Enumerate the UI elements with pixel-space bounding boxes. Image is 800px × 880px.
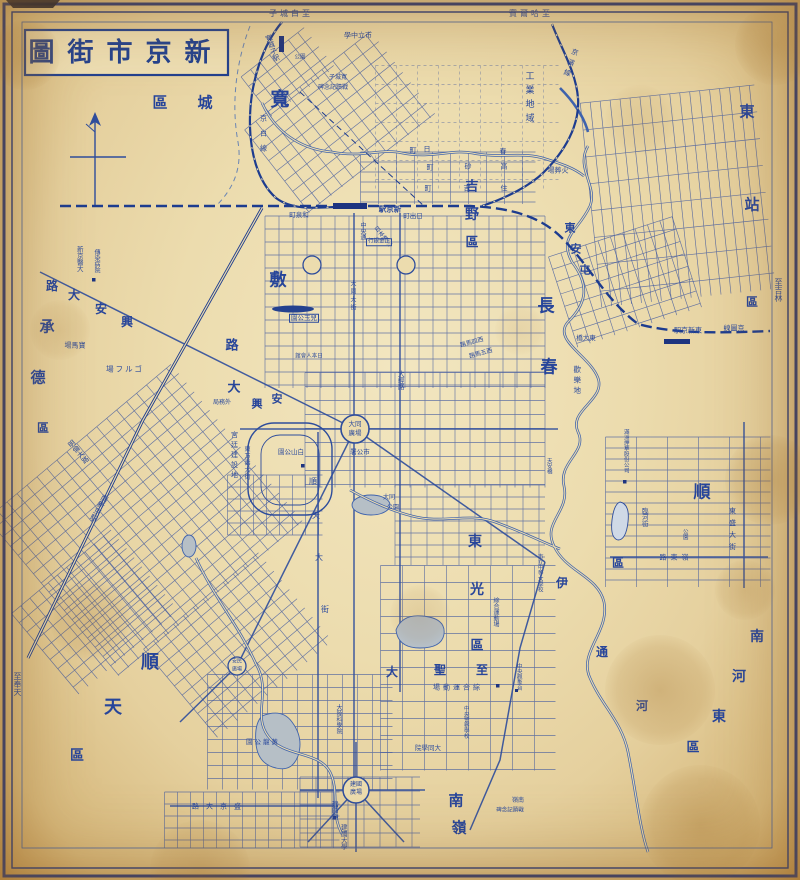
map-label: 町 <box>427 165 434 172</box>
district-label: 區 <box>70 749 84 763</box>
map-label: 町 <box>425 186 432 193</box>
map-label: 署公市 <box>350 449 370 456</box>
map-label: 歡樂地 <box>573 365 581 397</box>
map-label: 場馬寶 <box>65 343 86 350</box>
map-label: 建國廟 <box>331 800 338 820</box>
district-label: 嶺 <box>451 821 466 836</box>
map-label: 園公玉兒 <box>289 314 319 323</box>
district-label: 城 <box>197 96 212 111</box>
map-label: 京濱線 <box>561 47 579 80</box>
district-label: 德 <box>30 371 45 386</box>
map-label: 臨河街 <box>641 507 648 527</box>
map-label: 中央觀象台 <box>515 663 521 691</box>
map-label: 街 <box>321 606 329 614</box>
map-label: 天安橋 <box>545 458 551 475</box>
map-label: 場動運合綜 <box>433 685 483 692</box>
map-label: 公園 <box>387 505 399 511</box>
district-label: 安 <box>95 303 107 315</box>
map-label: 傳染病院 <box>93 249 99 273</box>
district-label: 東 <box>565 223 576 234</box>
map-label: 日 <box>424 147 431 154</box>
district-label: 區 <box>152 96 167 111</box>
district-label: 至 <box>476 664 488 676</box>
map-label: 砂 <box>465 164 472 171</box>
map-label: 京白線 <box>260 115 267 160</box>
district-label: 伊 <box>556 577 568 589</box>
district-label: 區 <box>686 742 699 755</box>
map-label: 大同大街 <box>349 280 355 312</box>
map-label: 橋大東 <box>576 335 596 342</box>
map-label: 綜合運動場 <box>492 597 498 627</box>
district-label: 聖 <box>434 664 446 676</box>
district-label: 通 <box>596 646 608 658</box>
district-label: 大 <box>386 666 398 678</box>
map-label: 廣場 <box>232 668 242 673</box>
map-label: 路馬五西 <box>469 348 494 360</box>
margin-note: 子城白至 <box>269 10 313 18</box>
margin-note: 至吉林 <box>774 278 782 302</box>
district-label: 野 <box>465 208 479 222</box>
district-label: 安 <box>571 244 582 255</box>
map-label: 大 <box>315 554 323 562</box>
map-label: 碑念記蹟戰 <box>496 808 524 814</box>
map-label: 春 <box>500 149 507 156</box>
map-label: 宮廷建設地 <box>231 431 238 481</box>
map-label: 大經路 <box>397 370 404 390</box>
map-label: 町 <box>410 148 417 155</box>
district-label: 承 <box>39 320 54 335</box>
map-label: 館會人本日 <box>295 354 323 360</box>
map-label: 新京醫大 <box>76 246 83 272</box>
map-label: 安民 <box>232 660 242 665</box>
map-label: 住 <box>501 186 508 193</box>
map-label: 中央警察學校 <box>462 706 468 739</box>
district-label: 東 <box>468 535 482 549</box>
district-label: 順 <box>694 485 711 502</box>
map-label: 市立中等女學校 <box>536 554 542 593</box>
map-label: 吉 <box>464 186 471 193</box>
district-label: 區 <box>465 237 478 250</box>
map-label: 路東嶺 <box>660 555 693 562</box>
map-label: 町出日 <box>403 213 423 220</box>
margin-note: 賓爾哈至 <box>509 10 553 18</box>
map-label: 大陸科學院 <box>335 704 341 734</box>
map-label: 局務外 <box>213 400 231 406</box>
map-label: 東盛大街 <box>729 507 736 555</box>
district-label: 河 <box>636 700 648 712</box>
map-label: 學中立市 <box>344 33 372 40</box>
map-label: 駅京新東 <box>674 328 702 335</box>
map-label: 園公龍黃 <box>246 739 280 746</box>
map-label: 廣場 <box>350 790 362 796</box>
district-label: 大 <box>227 382 240 395</box>
map-label: 建國大學 <box>340 824 347 850</box>
map-label: 碑念記蹟戰 <box>318 85 348 91</box>
district-label: 寬 <box>270 91 289 110</box>
district-label: 興 <box>252 399 263 410</box>
district-label: 安 <box>272 394 283 405</box>
map-label: 駅京新 <box>379 205 402 213</box>
map-label: 滿洲煙草股份公司 <box>622 429 628 473</box>
district-label: 區 <box>746 296 758 308</box>
map-label: 町泉和 <box>289 212 309 219</box>
map-label: 東万壽大街 <box>243 446 249 481</box>
district-label: 春 <box>541 360 558 377</box>
district-label: 興 <box>121 316 133 328</box>
map-label: 場フルゴ <box>106 365 144 373</box>
district-label: 區 <box>612 557 624 569</box>
map-label: 場葬火 <box>548 168 569 175</box>
district-label: 東 <box>712 710 726 724</box>
district-label: 天 <box>104 699 122 717</box>
district-label: 站 <box>744 198 759 213</box>
map-label: 線圖京 <box>724 326 745 333</box>
historical-city-map: 圖街市京新 子城白至賓爾哈至至吉林至奉天寬城區吉野區敷長春東站區東安屯順區東光區… <box>0 0 800 880</box>
district-label: 南 <box>448 794 463 809</box>
map-label: 明倫大路 <box>66 439 89 465</box>
map-label: 南新京駅 <box>89 493 110 523</box>
district-label: 敷 <box>270 273 287 290</box>
map-label: 中央通 <box>359 222 365 240</box>
map-label: 公園 <box>294 55 305 61</box>
district-label: 東 <box>739 105 754 120</box>
map-label: 順 <box>309 478 317 486</box>
map-label: 路大京盛 <box>192 804 248 811</box>
map-label: 子城寬 <box>329 75 347 81</box>
map-label: 公園 <box>681 529 687 540</box>
district-label: 長 <box>538 299 555 316</box>
district-label: 路 <box>225 340 238 353</box>
map-label: 行銀金正 <box>366 238 392 246</box>
map-label: 廣場 <box>349 430 362 437</box>
map-labels-layer: 圖街市京新 子城白至賓爾哈至至吉林至奉天寬城區吉野區敷長春東站區東安屯順區東光區… <box>0 0 800 880</box>
map-label: 院學同大 <box>415 745 441 752</box>
district-label: 光 <box>470 583 484 597</box>
map-title: 圖街市京新 <box>28 40 223 66</box>
district-label: 區 <box>37 422 49 434</box>
map-label: 建國 <box>350 782 362 788</box>
district-label: 順 <box>141 654 159 672</box>
district-label: 區 <box>470 640 483 653</box>
district-label: 河 <box>732 670 746 684</box>
map-label: 大同 <box>383 495 395 501</box>
map-label: 路馬四西 <box>460 337 485 349</box>
map-label: 嶺南 <box>512 798 524 804</box>
map-label: 高 <box>501 164 508 171</box>
map-label: 園公山白 <box>278 449 304 456</box>
map-label: 天 <box>312 512 320 520</box>
margin-note: 至奉天 <box>13 672 21 696</box>
district-label: 路 <box>46 280 58 292</box>
map-label: 工業地域 <box>524 71 533 127</box>
map-label: 大同 <box>349 421 362 428</box>
district-label: 屯 <box>580 265 591 276</box>
district-label: 南 <box>750 630 764 644</box>
district-label: 大 <box>68 289 80 301</box>
map-label: 寬城子駅 <box>264 34 280 63</box>
